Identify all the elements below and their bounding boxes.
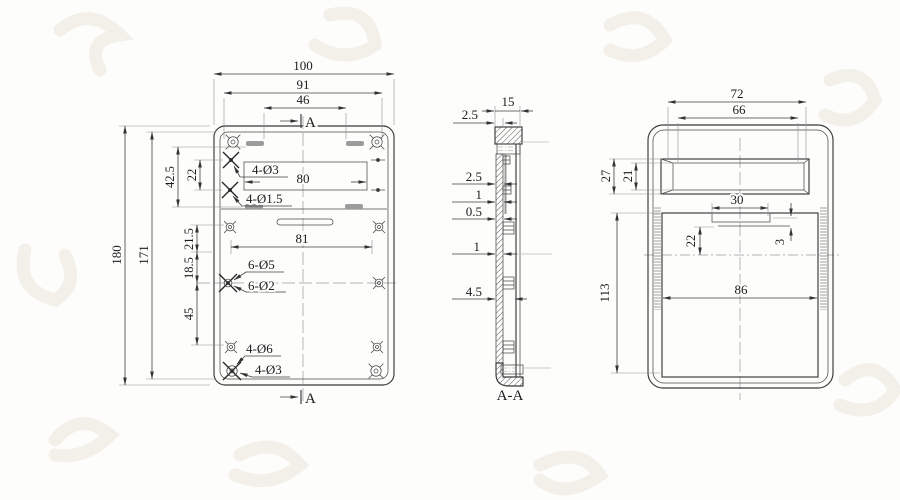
dim-front-inner-width: 91 <box>297 77 310 92</box>
back-window-recess <box>661 159 809 194</box>
dim-front-mid-gap-a: 21.5 <box>182 228 196 250</box>
dim-section-boss-depth: 4.5 <box>466 284 482 299</box>
section-top-wall <box>495 127 522 144</box>
dim-front-lower-gap: 45 <box>182 308 196 321</box>
dim-section-wall-c: 0.5 <box>466 204 482 219</box>
dim-back-window-inner-height: 21 <box>621 170 635 183</box>
back-right-ribs <box>820 206 827 310</box>
back-clip-slot <box>712 213 790 226</box>
dim-back-window-outer-height: 27 <box>599 170 613 183</box>
dim-section-wall-d: 1 <box>474 239 481 254</box>
section-bottom-wall <box>496 363 523 386</box>
engineering-drawing: 100 91 46 A A 180 171 42.5 22 21.5 18.5 … <box>0 0 900 500</box>
back-outer-outline <box>648 125 833 388</box>
front-center-slot <box>277 219 333 225</box>
front-view: 100 91 46 A A 180 171 42.5 22 21.5 18.5 … <box>109 58 396 407</box>
dim-front-overall-width: 100 <box>293 58 313 73</box>
label-front-holes-mid-2: 6-Ø2 <box>248 278 275 293</box>
dim-back-cavity-width: 86 <box>735 282 749 297</box>
drawing-canvas: 100 91 46 A A 180 171 42.5 22 21.5 18.5 … <box>0 0 900 500</box>
back-inner-outline <box>653 130 828 383</box>
label-front-holes-bottom-2: 4-Ø3 <box>255 362 282 377</box>
dim-front-hole-row-gap: 22 <box>185 169 199 182</box>
front-mid-slot-right <box>345 204 363 209</box>
dim-section-wall-b: 1 <box>476 187 483 202</box>
front-top-slot-left <box>246 141 264 146</box>
back-view: 72 66 27 21 30 22 3 113 86 <box>597 86 840 400</box>
dim-back-cavity-height: 113 <box>597 283 612 302</box>
back-dimensions <box>609 102 817 373</box>
dim-back-clip-width: 30 <box>731 192 744 207</box>
dim-front-upper-offset: 42.5 <box>163 166 177 188</box>
label-front-holes-top-1: 4-Ø3 <box>252 162 279 177</box>
label-front-holes-bottom-1: 4-Ø6 <box>246 341 273 356</box>
dim-section-top-wall: 2.5 <box>462 107 478 122</box>
dim-back-clip-offset: 22 <box>684 235 698 248</box>
dim-front-slot-span: 46 <box>297 92 311 107</box>
dim-front-inner-height: 171 <box>136 245 151 265</box>
dim-back-clip-thickness: 3 <box>773 239 787 245</box>
section-mark-top-label: A <box>305 115 316 131</box>
dim-front-overall-height: 180 <box>109 245 124 265</box>
dim-back-window-outer-width: 72 <box>731 86 744 101</box>
section-front-panel-wall <box>496 154 503 363</box>
section-view: 15 2.5 2.5 1 0.5 1 4.5 A-A <box>452 94 552 404</box>
front-top-slot-right <box>346 141 364 146</box>
section-mark-bottom-label: A <box>305 391 316 407</box>
dim-front-mid-gap-b: 18.5 <box>182 257 196 279</box>
section-title: A-A <box>497 388 524 404</box>
label-front-holes-mid-1: 6-Ø5 <box>248 257 275 272</box>
dim-front-hole-span: 81 <box>296 231 309 246</box>
dim-front-window-width: 80 <box>297 171 310 186</box>
dim-back-window-inner-width: 66 <box>733 102 747 117</box>
back-left-ribs <box>654 206 661 310</box>
dim-section-depth: 15 <box>502 94 515 109</box>
label-front-holes-top-2: 4-Ø1.5 <box>246 191 282 206</box>
dim-section-wall-a: 2.5 <box>466 169 482 184</box>
watermark <box>23 13 895 489</box>
section-cut-marks <box>280 114 301 404</box>
